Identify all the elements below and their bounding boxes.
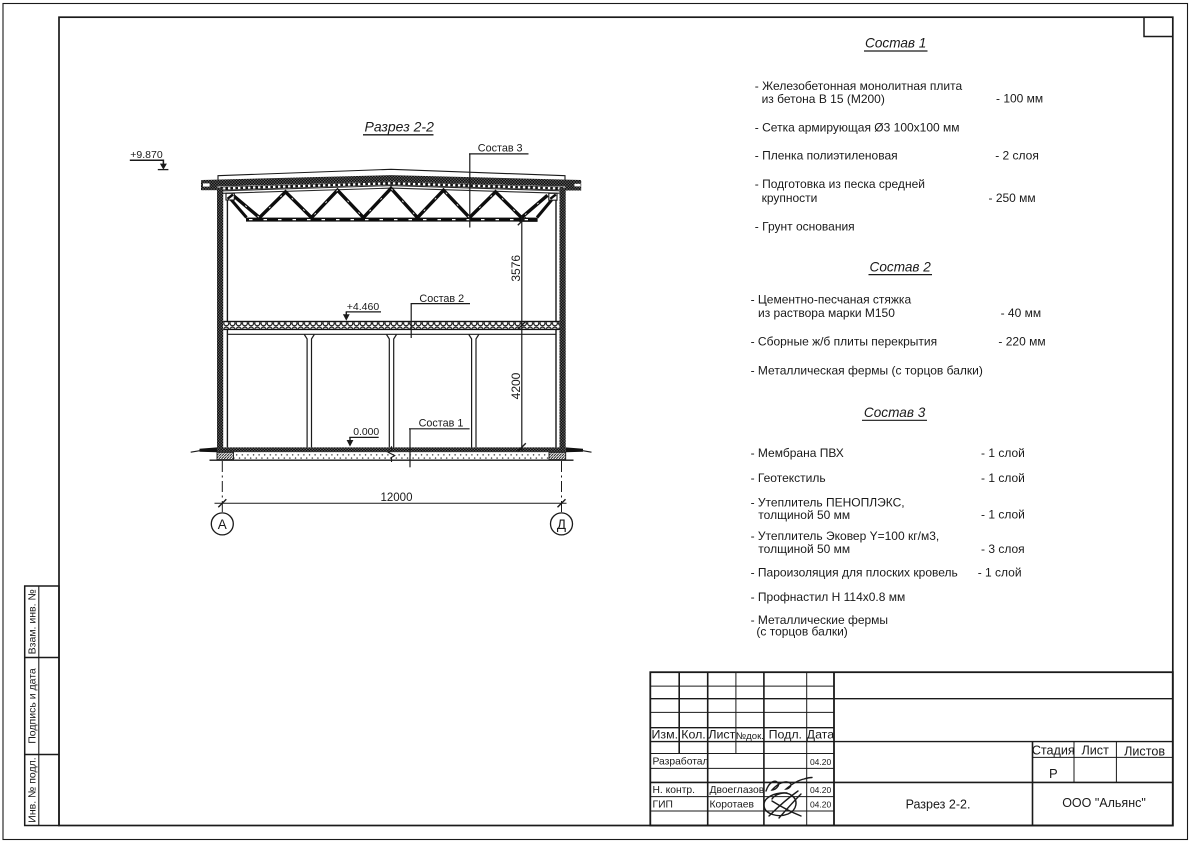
svg-text:0.000: 0.000 (353, 427, 379, 438)
svg-text:Разрез 2-2.: Разрез 2-2. (906, 797, 971, 811)
svg-text:- 1 слой: - 1 слой (981, 471, 1025, 485)
svg-text:(с торцов балки): (с торцов балки) (756, 624, 847, 638)
svg-text:крупности: крупности (762, 191, 818, 205)
svg-text:Лист: Лист (1082, 744, 1110, 758)
svg-text:+9.870: +9.870 (130, 149, 163, 161)
svg-text:Р: Р (1049, 766, 1058, 781)
svg-text:- Пленка полиэтиленовая: - Пленка полиэтиленовая (755, 149, 898, 163)
svg-text:Кол.: Кол. (681, 727, 706, 741)
svg-text:Стадия: Стадия (1032, 744, 1075, 758)
svg-text:Дата: Дата (807, 727, 835, 741)
svg-text:- 40 мм: - 40 мм (1001, 306, 1042, 320)
svg-text:А: А (218, 517, 227, 532)
svg-text:из бетона В 15 (М200): из бетона В 15 (М200) (762, 92, 885, 106)
svg-text:Состав 3: Состав 3 (864, 405, 926, 420)
svg-text:12000: 12000 (381, 492, 413, 504)
svg-text:04.20: 04.20 (810, 785, 832, 795)
svg-text:- Металлическая фермы (с торцо: - Металлическая фермы (с торцов балки) (751, 364, 983, 378)
svg-text:- Сборные ж/б плиты перекрытия: - Сборные ж/б плиты перекрытия (751, 335, 937, 349)
svg-text:толщиной 50 мм: толщиной 50 мм (758, 508, 850, 522)
svg-text:+4.460: +4.460 (347, 301, 380, 313)
svg-text:- Сетка армирующая Ø3 100х100: - Сетка армирующая Ø3 100х100 мм (755, 120, 960, 134)
svg-text:№док.: №док. (736, 731, 764, 742)
svg-text:Состав 3: Состав 3 (478, 142, 523, 154)
svg-text:- Утеплитель Эковер Y=100 кг/м: - Утеплитель Эковер Y=100 кг/м3, (751, 529, 940, 543)
svg-text:Двоеглазов: Двоеглазов (710, 785, 765, 796)
svg-text:ООО "Альянс": ООО "Альянс" (1062, 796, 1146, 810)
svg-text:- 100 мм: - 100 мм (996, 92, 1043, 106)
svg-text:3576: 3576 (509, 255, 523, 282)
svg-text:Инв. № подл.: Инв. № подл. (27, 757, 39, 822)
svg-text:Состав 1: Состав 1 (419, 417, 464, 429)
svg-text:толщиной 50 мм: толщиной 50 мм (758, 542, 850, 556)
svg-text:Д: Д (557, 517, 566, 532)
svg-text:- Профнастил Н 114х0.8 мм: - Профнастил Н 114х0.8 мм (751, 590, 906, 604)
svg-text:Подл.: Подл. (769, 727, 802, 741)
svg-text:04.20: 04.20 (810, 799, 832, 809)
svg-text:- Цементно-песчаная стяжка: - Цементно-песчаная стяжка (751, 293, 912, 307)
svg-text:Листов: Листов (1124, 745, 1165, 759)
svg-text:Взам. инв. №: Взам. инв. № (27, 589, 39, 654)
svg-text:из раствора марки М150: из раствора марки М150 (758, 306, 895, 320)
svg-text:4200: 4200 (509, 372, 523, 399)
svg-text:- Геотекстиль: - Геотекстиль (751, 471, 826, 485)
svg-text:Н. контр.: Н. контр. (653, 785, 696, 796)
svg-text:Изм.: Изм. (652, 727, 679, 741)
svg-text:Разработал: Разработал (653, 756, 709, 768)
svg-text:Разрез 2-2: Разрез 2-2 (365, 118, 435, 134)
svg-text:- 2 слоя: - 2 слоя (995, 149, 1039, 163)
svg-text:- 3 слоя: - 3 слоя (981, 542, 1025, 556)
svg-text:ГИП: ГИП (653, 800, 673, 811)
svg-text:Лист: Лист (708, 727, 735, 741)
svg-text:- 1 слой: - 1 слой (978, 565, 1022, 579)
svg-text:Коротаев: Коротаев (710, 800, 755, 811)
svg-text:- Мембрана ПВХ: - Мембрана ПВХ (751, 446, 844, 460)
svg-text:- Грунт основания: - Грунт основания (755, 220, 855, 234)
svg-text:Состав 1: Состав 1 (865, 36, 926, 51)
svg-text:Состав 2: Состав 2 (870, 259, 932, 274)
svg-text:- Подготовка из песка средней: - Подготовка из песка средней (755, 177, 925, 191)
svg-text:- 1 слой: - 1 слой (981, 446, 1025, 460)
svg-text:- Железобетонная монолитная п: - Железобетонная монолитная плита (755, 79, 963, 93)
svg-text:- 250 мм: - 250 мм (989, 191, 1036, 205)
svg-text:04.20: 04.20 (810, 757, 832, 767)
svg-text:- 220 мм: - 220 мм (998, 335, 1045, 349)
svg-text:Подпись и дата: Подпись и дата (27, 668, 39, 744)
svg-text:- Пароизоляция для плоских кро: - Пароизоляция для плоских кровель (751, 565, 958, 579)
svg-text:- 1 слой: - 1 слой (981, 507, 1025, 521)
